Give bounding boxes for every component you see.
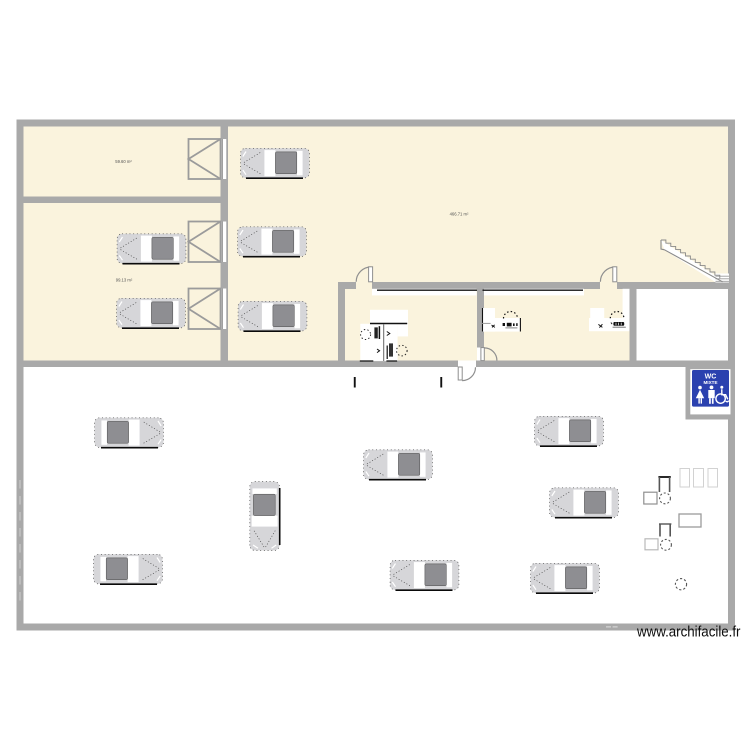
- svg-text:MIXTE: MIXTE: [703, 380, 717, 385]
- svg-text:59.60 m²: 59.60 m²: [115, 159, 132, 164]
- svg-text:www.archifacile.fr: www.archifacile.fr: [636, 625, 741, 641]
- svg-text:466.71 m²: 466.71 m²: [450, 212, 469, 217]
- svg-text:99.13 m²: 99.13 m²: [116, 278, 133, 283]
